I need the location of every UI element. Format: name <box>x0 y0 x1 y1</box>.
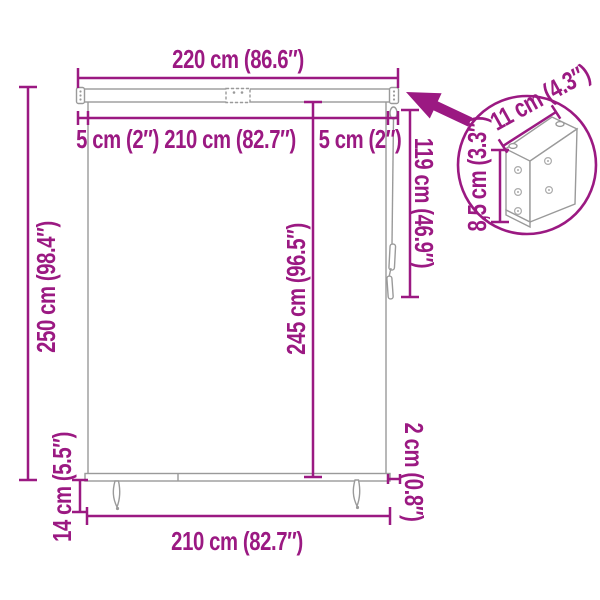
dim-label-total-width: 220 cm (86.6″) <box>172 46 304 72</box>
cord-handle-1 <box>389 244 396 270</box>
dim-line-fabric-width-bottom <box>87 507 390 525</box>
right-foot-peg <box>353 480 359 506</box>
center-bracket <box>226 89 250 103</box>
dim-label-bar-thickness: 2 cm (0.8″) <box>401 423 427 522</box>
dim-label-cord-length: 119 cm (46.9″) <box>411 138 437 269</box>
dim-label-total-height: 250 cm (98.4″) <box>33 221 59 353</box>
dim-label-bracket-height: 8,5 cm (3.3″) <box>464 116 490 231</box>
dim-label-fabric-width-bottom: 210 cm (82.7″) <box>171 528 303 554</box>
dim-label-bottom-clearance: 14 cm (5.5″) <box>49 432 75 542</box>
left-foot-peg <box>113 481 119 507</box>
dim-label-fabric-drop: 245 cm (96.5″) <box>283 223 309 355</box>
bracket-flange-slot-right <box>556 122 564 127</box>
bracket-flange-slot-left <box>509 144 517 149</box>
roller-blind-dimension-diagram: 220 cm (86.6″) 5 cm (2″) 210 cm (82.7″) … <box>0 0 600 600</box>
dim-label-margin-right: 5 cm (2″) <box>319 126 402 152</box>
cord-handle-2 <box>387 276 394 299</box>
bottom-bar <box>85 474 390 482</box>
dim-label-margin-and-fabric-width: 5 cm (2″) 210 cm (82.7″) <box>76 126 296 152</box>
